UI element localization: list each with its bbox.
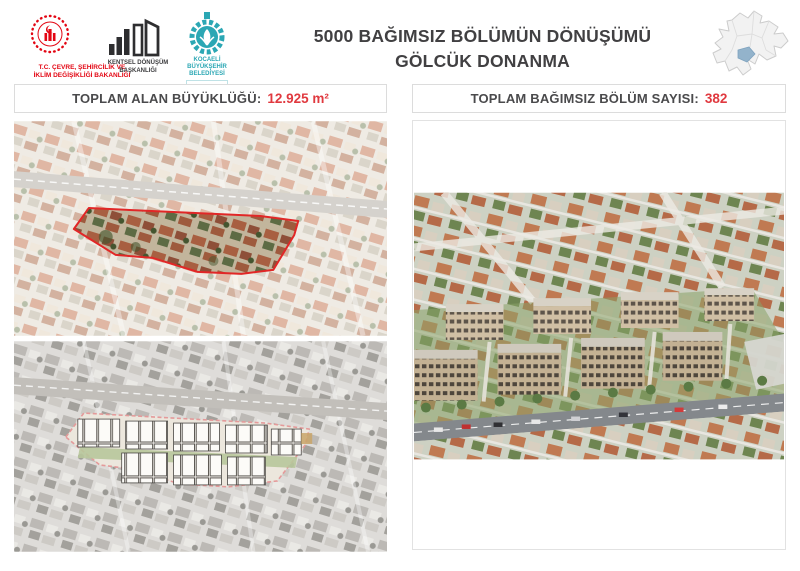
kocaeli-municipality-logo: KOCAELİ BÜYÜKŞEHİR BELEDİYESİ xyxy=(176,12,238,88)
presentation-slide: T.C. ÇEVRE, ŞEHİRCİLİK VE İKLİM DEĞİŞİKL… xyxy=(0,0,800,571)
project-render-photo xyxy=(414,192,784,460)
page-title: 5000 BAĞIMSIZ BÖLÜMÜN DÖNÜŞÜMÜ GÖLCÜK DO… xyxy=(295,24,670,73)
unit-count-bar: TOPLAM BAĞIMSIZ BÖLÜM SAYISI: 382 xyxy=(412,84,786,113)
kocaeli-municipality-icon xyxy=(186,12,228,56)
total-area-label: TOPLAM ALAN BÜYÜKLÜĞÜ: xyxy=(72,91,261,106)
kentsel-donusum-icon xyxy=(106,18,160,58)
total-area-value: 12.925 m² xyxy=(267,91,329,106)
title-line-1: 5000 BAĞIMSIZ BÖLÜMÜN DÖNÜŞÜMÜ xyxy=(314,26,652,46)
unit-count-value: 382 xyxy=(705,91,728,106)
title-line-2: GÖLCÜK DONANMA xyxy=(395,51,570,71)
kentsel-donusum-label: KENTSEL DÖNÜŞÜM BAŞKANLIĞI xyxy=(106,60,170,76)
kocaeli-map-icon xyxy=(704,6,792,84)
kentsel-donusum-logo: KENTSEL DÖNÜŞÜM BAŞKANLIĞI xyxy=(106,18,170,76)
total-area-bar: TOPLAM ALAN BÜYÜKLÜĞÜ: 12.925 m² xyxy=(14,84,387,113)
site-plan-photo xyxy=(14,341,387,552)
ministry-emblem-icon xyxy=(24,10,76,62)
project-render-panel xyxy=(412,120,786,550)
kocaeli-municipality-label: KOCAELİ BÜYÜKŞEHİR BELEDİYESİ xyxy=(176,57,238,78)
aerial-before-photo xyxy=(14,121,387,336)
unit-count-label: TOPLAM BAĞIMSIZ BÖLÜM SAYISI: xyxy=(471,91,699,106)
